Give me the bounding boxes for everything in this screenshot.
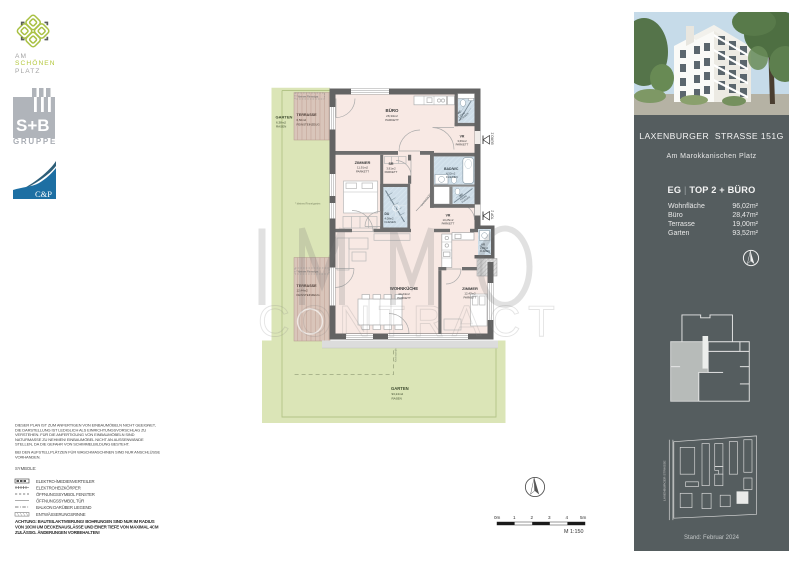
- svg-text:FEINSTEINZEUG: FEINSTEINZEUG: [297, 123, 321, 127]
- svg-text:PARKETT: PARKETT: [385, 170, 398, 174]
- svg-text:ELEKTROHEIZKÖRPER: ELEKTROHEIZKÖRPER: [36, 486, 81, 491]
- svg-text:11,91m2: 11,91m2: [357, 166, 368, 170]
- svg-text:RASEN: RASEN: [392, 397, 402, 401]
- svg-text:M 1:150: M 1:150: [564, 529, 583, 535]
- svg-text:ÖFFNUNGSSYMBOL FENSTER: ÖFFNUNGSSYMBOL FENSTER: [36, 492, 95, 497]
- svg-text:TOP 2: TOP 2: [491, 210, 495, 219]
- svg-text:SR: SR: [389, 162, 394, 166]
- svg-text:BAD/WC: BAD/WC: [444, 167, 459, 171]
- svg-text:1: 1: [513, 515, 516, 520]
- svg-text:BÜRO: BÜRO: [386, 108, 400, 113]
- svg-text:28,33m2: 28,33m2: [386, 114, 398, 118]
- svg-text:DU: DU: [385, 212, 390, 216]
- svg-text:CONTRACT: CONTRACT: [258, 297, 562, 346]
- svg-text:GARTEN: GARTEN: [276, 115, 293, 120]
- svg-text:ZIMMER: ZIMMER: [462, 286, 478, 291]
- svg-text:PARKETT: PARKETT: [356, 170, 369, 174]
- svg-text:6,50m2: 6,50m2: [297, 118, 307, 122]
- svg-text:6,38m2: 6,38m2: [276, 121, 286, 125]
- svg-text:TERRASSE: TERRASSE: [297, 113, 318, 117]
- svg-text:12,47m2: 12,47m2: [464, 292, 476, 296]
- svg-text:5m: 5m: [580, 515, 587, 520]
- svg-text:2: 2: [531, 515, 534, 520]
- svg-text:FLIESEN: FLIESEN: [385, 220, 396, 224]
- svg-text:ZIMMER: ZIMMER: [355, 160, 371, 165]
- svg-text:4,08m2: 4,08m2: [385, 217, 394, 221]
- svg-text:BÜRO 2: BÜRO 2: [491, 132, 495, 144]
- svg-text:93,24m2: 93,24m2: [392, 392, 404, 396]
- svg-text:* kleines Rinne/garten: * kleines Rinne/garten: [295, 202, 321, 206]
- svg-text:ENTWÄSSERUNGSRINNE: ENTWÄSSERUNGSRINNE: [36, 512, 86, 517]
- svg-text:FLIESEN: FLIESEN: [446, 175, 458, 179]
- svg-text:ELEKTRO-/MEDIENVERTEILER: ELEKTRO-/MEDIENVERTEILER: [36, 479, 94, 484]
- svg-text:PARKETT: PARKETT: [385, 118, 399, 122]
- svg-text:4: 4: [566, 515, 569, 520]
- svg-text:VR: VR: [460, 135, 465, 139]
- svg-text:ÖFFNUNGSSYMBOL TÜR: ÖFFNUNGSSYMBOL TÜR: [36, 499, 84, 504]
- svg-text:BALKON DARÜBER LIEGEND: BALKON DARÜBER LIEGEND: [36, 505, 91, 510]
- svg-text:* kleines Rinne/gar.: * kleines Rinne/gar.: [297, 94, 320, 98]
- svg-text:PARKETT: PARKETT: [456, 143, 469, 147]
- svg-text:PARKETT: PARKETT: [442, 222, 455, 226]
- svg-text:LAXENBURGER STRASSE: LAXENBURGER STRASSE: [663, 460, 667, 500]
- svg-text:3: 3: [548, 515, 551, 520]
- svg-text:GARTEN: GARTEN: [391, 386, 409, 391]
- svg-text:0m: 0m: [494, 515, 501, 520]
- svg-text:RASEN: RASEN: [276, 125, 286, 129]
- svg-text:44,24m2: 44,24m2: [398, 292, 410, 296]
- svg-text:VR: VR: [446, 214, 451, 218]
